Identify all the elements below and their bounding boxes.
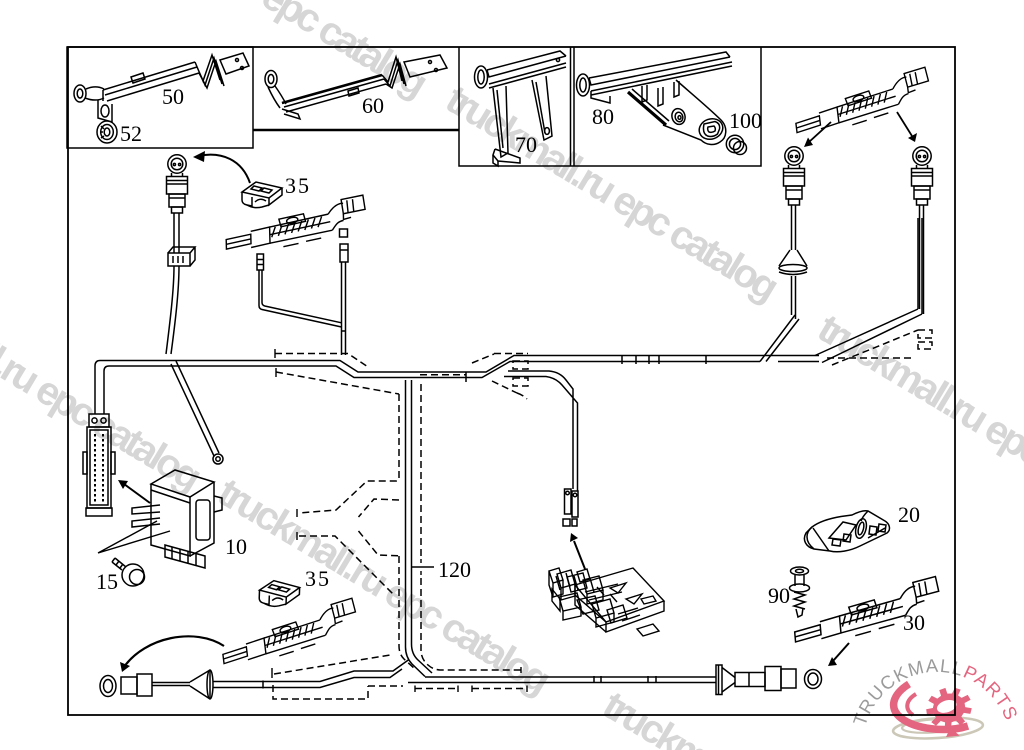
svg-text:60: 60 [362,93,384,118]
svg-text:30: 30 [903,610,925,635]
svg-text:52: 52 [120,121,142,146]
svg-text:10: 10 [225,534,247,559]
svg-text:120: 120 [438,557,471,582]
svg-text:80: 80 [592,104,614,129]
svg-text:20: 20 [898,502,920,527]
svg-text:truckmall.ru epc catalog: truckmall.ru epc catalog [87,0,433,105]
svg-text:15: 15 [96,569,118,594]
svg-text:35: 35 [305,566,331,591]
svg-text:90: 90 [768,583,790,608]
svg-text:100: 100 [729,108,762,133]
svg-text:70: 70 [515,132,537,157]
svg-text:50: 50 [162,84,184,109]
svg-text:truckmall.ru epc catalog: truckmall.ru epc catalog [210,470,556,702]
svg-text:35: 35 [285,173,311,198]
